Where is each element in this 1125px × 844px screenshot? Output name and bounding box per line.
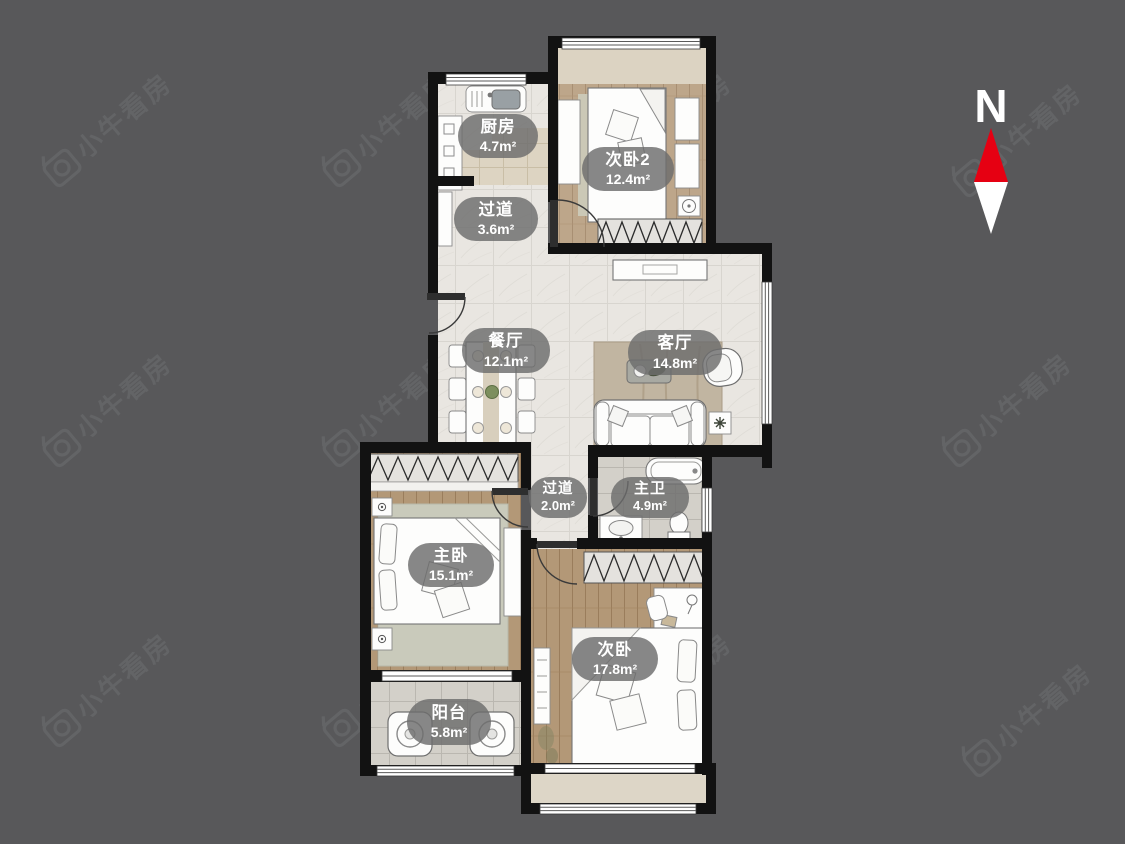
- hall-cabinet: [438, 192, 452, 246]
- svg-text:厨房: 厨房: [481, 116, 516, 136]
- south-balcony-window: [540, 804, 696, 814]
- bedroom2-wardrobe-panel: [675, 98, 699, 140]
- master-dresser: [504, 528, 521, 616]
- living-window: [762, 282, 772, 424]
- room-label-kitchen: 厨房 4.7m²: [458, 114, 538, 158]
- svg-text:过道: 过道: [479, 199, 514, 219]
- bath-window: [702, 488, 712, 532]
- bedroom-wardrobe: [584, 552, 704, 583]
- kitchen-window: [446, 74, 526, 85]
- svg-text:主卫: 主卫: [634, 479, 666, 497]
- room-label-dining: 餐厅 12.1m²: [462, 328, 550, 373]
- radiator: [534, 648, 550, 724]
- bedroom2-cabinet: [558, 100, 580, 184]
- kitchen-faucet: [488, 93, 493, 98]
- room-label-hallway-north: 过道 3.6m²: [454, 197, 538, 241]
- room-label-living: 客厅 14.8m²: [628, 330, 722, 375]
- svg-text:12.1m²: 12.1m²: [484, 353, 529, 369]
- room-label-bedroom: 次卧 17.8m²: [572, 637, 658, 681]
- balcony-window: [377, 766, 514, 776]
- room-label-master-bedroom: 主卧 15.1m²: [408, 543, 494, 587]
- floor-plan-canvas: 小牛看房 小牛看房 小牛看房 小牛看房 小牛看房 小牛看房 小牛看房 小牛看房: [0, 0, 1125, 844]
- pillow: [379, 523, 398, 564]
- plant: [538, 726, 554, 750]
- balcony-slider: [382, 671, 512, 681]
- svg-text:4.9m²: 4.9m²: [633, 498, 668, 513]
- kitchen-sink-basin: [492, 90, 520, 109]
- svg-text:3.6m²: 3.6m²: [478, 221, 515, 237]
- svg-text:过道: 过道: [543, 479, 574, 497]
- svg-text:15.1m²: 15.1m²: [429, 567, 474, 583]
- svg-text:次卧: 次卧: [598, 639, 633, 659]
- south-balcony-floor: [531, 772, 706, 804]
- pillow: [677, 640, 697, 683]
- svg-text:次卧2: 次卧2: [605, 149, 650, 169]
- svg-text:2.0m²: 2.0m²: [541, 498, 576, 513]
- bedroom-sill: [545, 764, 695, 773]
- room-label-bedroom2: 次卧2 12.4m²: [582, 147, 674, 191]
- svg-text:5.8m²: 5.8m²: [431, 724, 468, 740]
- tv-console: [613, 260, 707, 280]
- room-label-balcony: 阳台 5.8m²: [407, 699, 491, 745]
- floor-plan-page: 小牛看房 小牛看房 小牛看房 小牛看房 小牛看房 小牛看房 小牛看房 小牛看房: [0, 0, 1125, 844]
- svg-text:阳台: 阳台: [432, 702, 467, 722]
- sofa: [594, 400, 706, 448]
- room-label-hallway-south: 过道 2.0m²: [529, 477, 587, 518]
- svg-text:12.4m²: 12.4m²: [606, 171, 651, 187]
- north-balcony-floor: [558, 46, 706, 86]
- svg-text:主卧: 主卧: [434, 545, 469, 565]
- svg-text:客厅: 客厅: [657, 332, 693, 352]
- table-plant: [486, 386, 499, 399]
- svg-text:14.8m²: 14.8m²: [653, 355, 698, 371]
- svg-text:餐厅: 餐厅: [489, 330, 524, 350]
- north-balcony-window: [562, 38, 700, 49]
- svg-text:17.8m²: 17.8m²: [593, 661, 638, 677]
- room-label-master-bath: 主卫 4.9m²: [611, 477, 689, 518]
- compass-north-label: N: [974, 80, 1007, 132]
- svg-text:4.7m²: 4.7m²: [480, 138, 517, 154]
